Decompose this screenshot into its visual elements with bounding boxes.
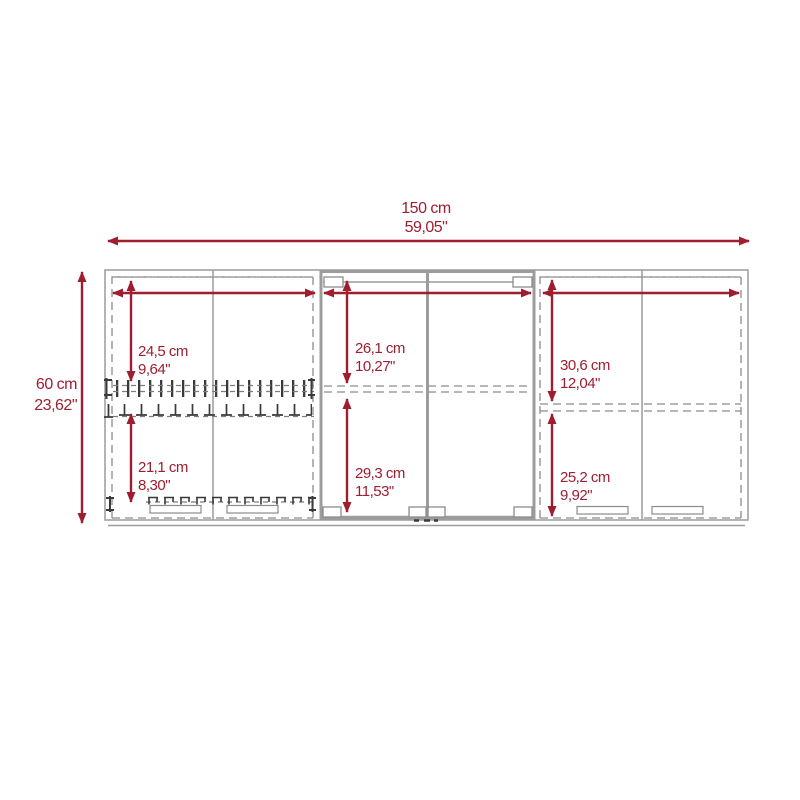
hinge-top-left <box>324 277 343 287</box>
right-upper-in-label: 12,04" <box>560 375 600 392</box>
diagram-canvas: 150 cm 59,05" 60 cm 23,62" 24,5 cm 9,64"… <box>0 0 800 800</box>
right-lower-cm-label: 25,2 cm <box>560 469 610 486</box>
left-upper-cm-label: 24,5 cm <box>138 343 188 360</box>
left-section <box>104 270 316 520</box>
center-upper-cm-label: 26,1 cm <box>355 340 405 357</box>
overall-height-in-label: 23,62" <box>34 397 77 414</box>
hinge-bottom-right <box>514 507 532 517</box>
hinge-bottom-center-left <box>409 507 426 517</box>
right-lower-in-label: 9,92" <box>560 487 592 504</box>
left-lower-cm-label: 21,1 cm <box>138 459 188 476</box>
hook-rack <box>104 403 314 418</box>
left-rail <box>150 506 201 514</box>
overall-height-cm-label: 60 cm <box>36 376 77 393</box>
left-lower-in-label: 8,30" <box>138 477 170 494</box>
bottom-rack <box>106 496 316 513</box>
overall-width-cm-label: 150 cm <box>401 200 451 217</box>
right-section-handle-right <box>652 507 703 515</box>
center-upper-in-label: 10,27" <box>355 358 395 375</box>
hinge-bottom-center-right <box>428 507 445 517</box>
overall-width-in-label: 59,05" <box>405 219 448 236</box>
left-upper-in-label: 9,64" <box>138 361 170 378</box>
hinge-bottom-left <box>323 507 341 517</box>
center-section <box>321 272 534 521</box>
right-upper-cm-label: 30,6 cm <box>560 357 610 374</box>
cabinet-dimension-diagram: 150 cm 59,05" 60 cm 23,62" 24,5 cm 9,64"… <box>0 0 800 800</box>
center-lower-cm-label: 29,3 cm <box>355 465 405 482</box>
center-lower-in-label: 11,53" <box>355 483 394 500</box>
plate-rack <box>104 378 315 399</box>
right-section-handle-left <box>577 507 628 515</box>
hinge-top-right <box>513 277 532 287</box>
right-rail <box>227 506 278 514</box>
cabinet-drawing <box>104 270 748 526</box>
